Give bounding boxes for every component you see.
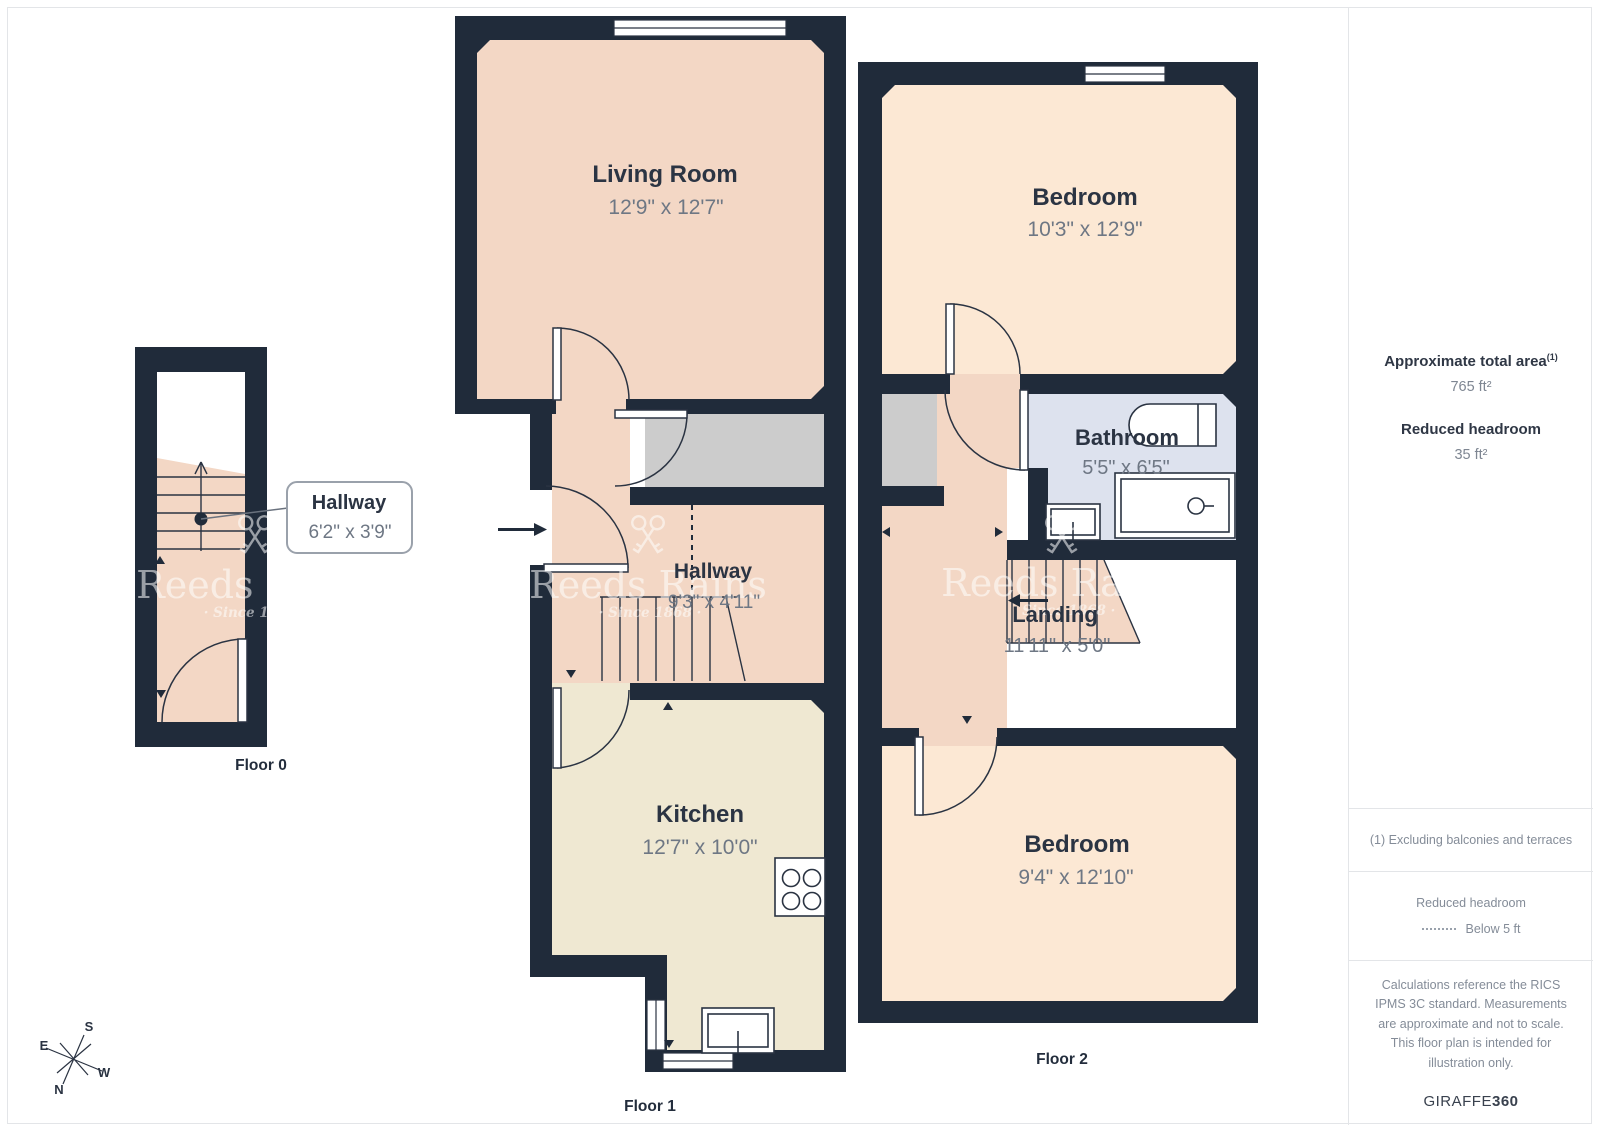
bathroom-dims: 5'5" x 6'5" — [1082, 457, 1169, 479]
bathroom-door-leaf — [1020, 390, 1028, 470]
compass-east: E — [40, 1038, 49, 1053]
total-area-value: 765 ft² — [1450, 379, 1491, 395]
floor1-label: Floor 1 — [624, 1098, 676, 1115]
legend-title: Reduced headroom — [1416, 896, 1526, 910]
info-sidebar: Approximate total area(1) 765 ft² Reduce… — [1348, 7, 1593, 1125]
bedroom1-door-leaf — [946, 304, 954, 374]
giraffe360-logo: GIRAFFE360 — [1423, 1093, 1518, 1110]
entrance-arrow — [498, 523, 547, 536]
hallway-upper-area — [552, 414, 630, 505]
living-room-label: Living Room — [592, 161, 737, 188]
kitchen-sink — [702, 1008, 774, 1053]
callout-room-dims: 6'2" x 3'9" — [308, 522, 391, 543]
reduced-headroom-title: Reduced headroom — [1401, 421, 1541, 438]
landing-dims: 11'11" x 5'0" — [1004, 635, 1111, 657]
window — [1085, 66, 1165, 82]
compass-south: S — [85, 1019, 94, 1034]
landing-label: Landing — [1012, 602, 1098, 627]
watermark-since: · Since 1868 · — [204, 605, 307, 621]
hallway-label: Hallway — [674, 560, 753, 583]
footnote-ref: (1) — [1547, 352, 1558, 362]
legend-value: Below 5 ft — [1466, 922, 1521, 936]
legend-section: Reduced headroom Below 5 ft — [1349, 871, 1593, 960]
total-area-title: Approximate total area(1) — [1384, 352, 1558, 370]
bedroom1-doorway — [950, 374, 1020, 394]
shower-tray — [1115, 473, 1235, 538]
area-summary-section: Approximate total area(1) 765 ft² Reduce… — [1349, 7, 1593, 808]
compass-rose — [46, 1035, 102, 1084]
bedroom2-door-leaf — [915, 737, 923, 815]
kitchen-hob — [775, 858, 825, 916]
floor2-void-gray — [882, 394, 937, 486]
floorplan-page: { "floors": { "floor0": { "label": "Floo… — [0, 0, 1600, 1132]
bedroom1-dims: 10'3" x 12'9" — [1027, 218, 1142, 241]
floor0-stair-void — [157, 372, 245, 474]
kitchen-doorway — [552, 683, 630, 700]
footnote-section: (1) Excluding balconies and terraces — [1349, 808, 1593, 871]
living-room-dims: 12'9" x 12'7" — [608, 196, 723, 219]
bedroom2-label: Bedroom — [1024, 831, 1129, 858]
floor2-label: Floor 2 — [1036, 1051, 1088, 1068]
living-room-area — [477, 40, 824, 399]
bedroom2-dims: 9'4" x 12'10" — [1018, 866, 1133, 889]
bedroom2-doorway — [919, 728, 997, 746]
callout-room-label: Hallway — [312, 492, 387, 514]
compass-west: W — [98, 1065, 111, 1080]
compass-north: N — [54, 1082, 63, 1097]
bathroom-sink — [1046, 504, 1100, 540]
living-room-door-leaf — [553, 328, 561, 400]
disclaimer-text: Calculations reference the RICS IPMS 3C … — [1367, 976, 1575, 1073]
floor0-door-leaf — [238, 639, 247, 722]
disclaimer-section: Calculations reference the RICS IPMS 3C … — [1349, 960, 1593, 1125]
floor0-label: Floor 0 — [235, 757, 287, 774]
kitchen-door-leaf — [553, 688, 561, 768]
footnote-text: (1) Excluding balconies and terraces — [1370, 833, 1572, 847]
understairs-storage-area — [645, 414, 824, 487]
storage-door-leaf — [615, 410, 687, 418]
reduced-headroom-value: 35 ft² — [1454, 447, 1487, 463]
watermark-brand: Reeds Rains — [941, 561, 1179, 605]
dashed-line-sample — [1422, 928, 1456, 930]
bedroom1-label: Bedroom — [1032, 184, 1137, 211]
watermark-brand: Reeds Rains — [136, 563, 374, 607]
hallway-dims: 9'3" x 4'11" — [668, 592, 760, 613]
bathroom-label: Bathroom — [1075, 425, 1179, 450]
kitchen-label: Kitchen — [656, 801, 744, 828]
kitchen-dims: 12'7" x 10'0" — [642, 836, 757, 859]
